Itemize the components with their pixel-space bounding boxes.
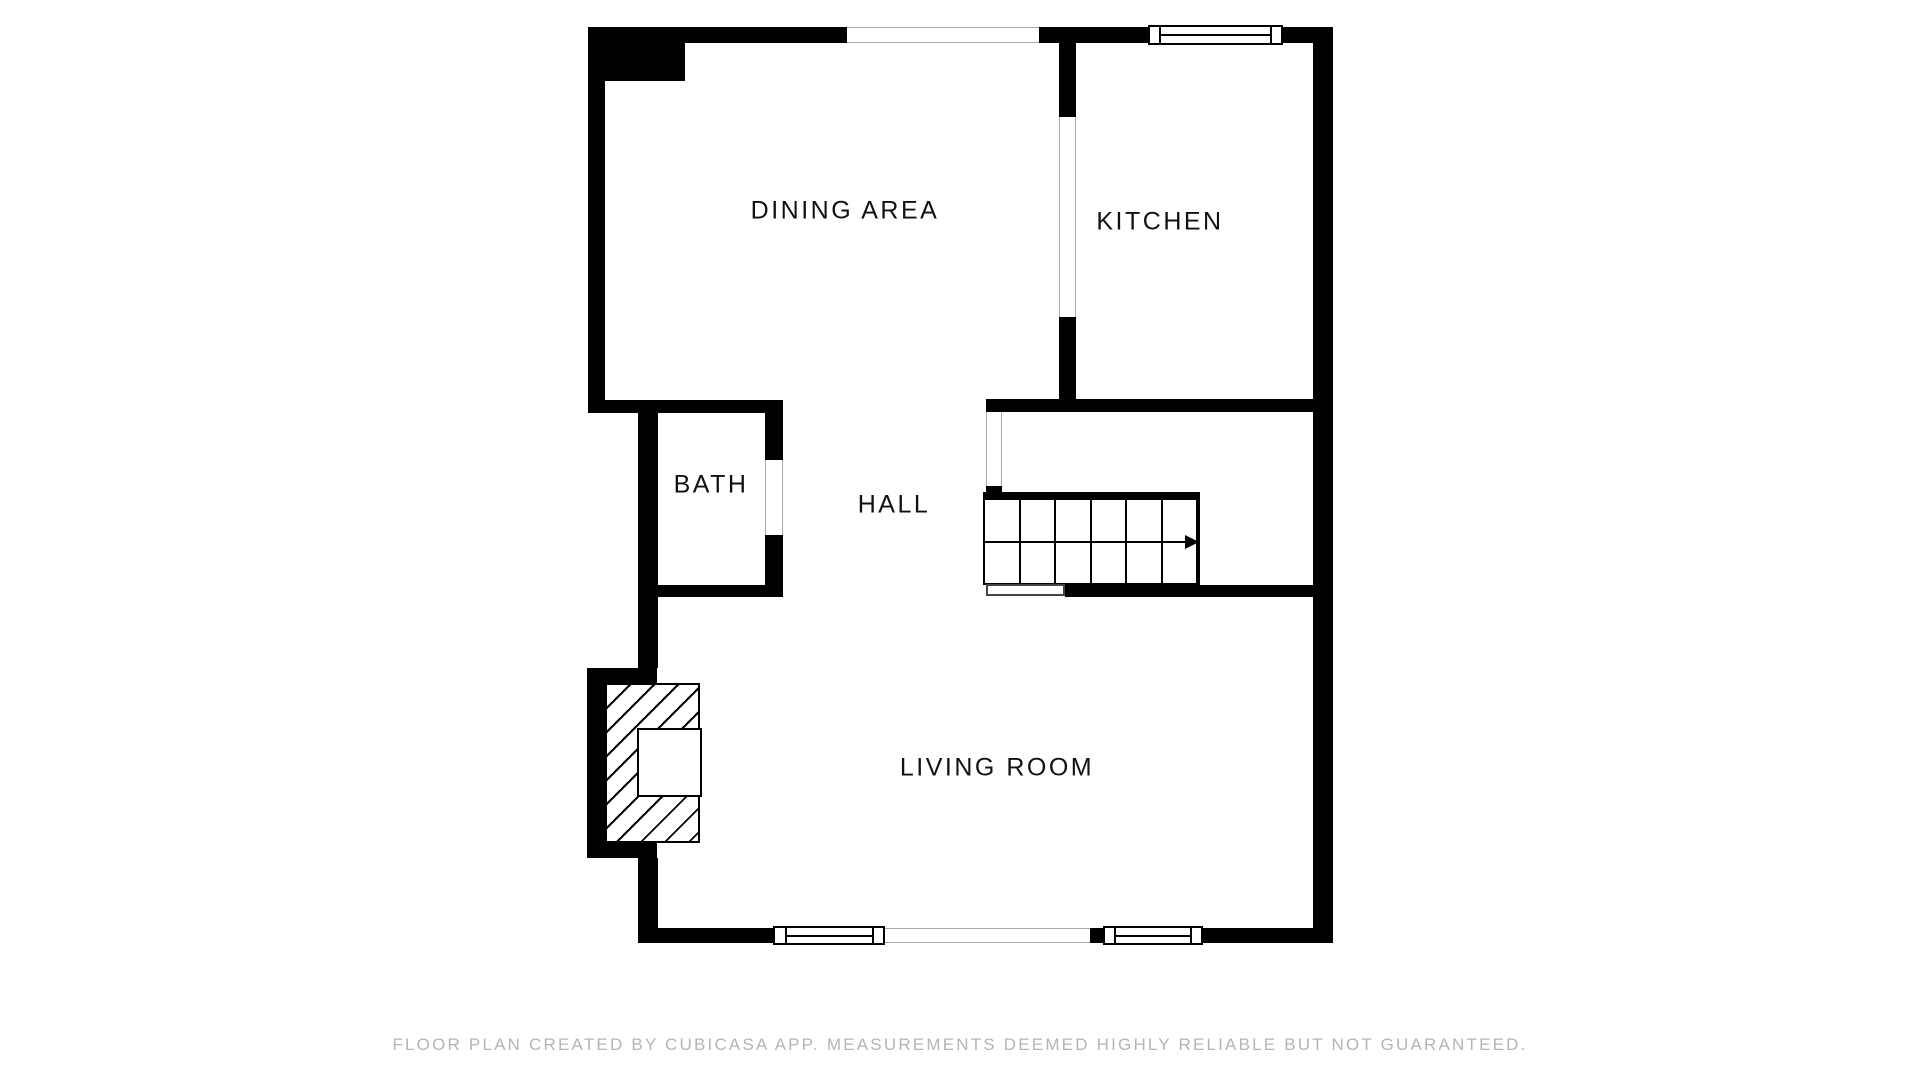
wall-bottom-b	[1090, 928, 1103, 943]
wall-living-room-top	[1065, 585, 1313, 597]
living-room-window-right	[1103, 926, 1203, 945]
wall-bottom-a	[638, 928, 773, 943]
stairs-bottom-rail	[986, 584, 1065, 596]
wall-divider-top	[1059, 43, 1076, 117]
hall-stairs-opening	[986, 412, 1002, 486]
wall-fireplace-left	[587, 668, 605, 858]
wall-kitchen-bottom	[986, 399, 1313, 412]
wall-top-b	[1039, 27, 1149, 43]
fireplace-firebox	[637, 728, 702, 797]
wall-left-mid	[638, 413, 658, 668]
living-room-window-right-pane	[1114, 928, 1192, 943]
living-room-window-right-mullion	[1116, 935, 1190, 937]
wall-left-upper	[588, 27, 605, 413]
kitchen-window	[1148, 25, 1283, 45]
living-room-window-left-pane	[785, 928, 874, 943]
bath-door-opening	[765, 460, 783, 535]
kitchen-window-mullion	[1161, 34, 1270, 36]
wall-divider-bottom	[1059, 317, 1076, 399]
footer-disclaimer: FLOOR PLAN CREATED BY CUBICASA APP. MEAS…	[0, 1035, 1920, 1055]
wall-left-lower	[638, 858, 658, 928]
room-label-kitchen: KITCHEN	[1096, 208, 1223, 237]
living-room-window-left	[773, 926, 885, 945]
wall-top-a	[588, 27, 847, 43]
living-room-window-left-mullion	[787, 935, 872, 937]
wall-bath-bottom	[657, 585, 783, 597]
kitchen-window-pane	[1159, 27, 1272, 43]
wall-step-bath-top	[588, 400, 783, 413]
wall-bath-right-upper	[765, 413, 783, 460]
room-label-dining-area: DINING AREA	[751, 197, 940, 226]
dining-kitchen-opening	[1059, 117, 1076, 317]
stairs-top-bar	[983, 492, 1200, 500]
room-label-bath: BATH	[674, 471, 749, 500]
dining-top-opening	[847, 27, 1039, 43]
room-label-hall: HALL	[858, 491, 931, 520]
floor-plan-canvas: DINING AREA KITCHEN BATH HALL LIVING ROO…	[0, 0, 1920, 1080]
wall-bottom-c	[1203, 928, 1333, 943]
room-label-living-room: LIVING ROOM	[900, 754, 1094, 783]
stairs-direction-arrow-icon	[985, 530, 1200, 554]
living-room-bottom-opening	[885, 928, 1090, 943]
wall-right	[1313, 27, 1333, 943]
